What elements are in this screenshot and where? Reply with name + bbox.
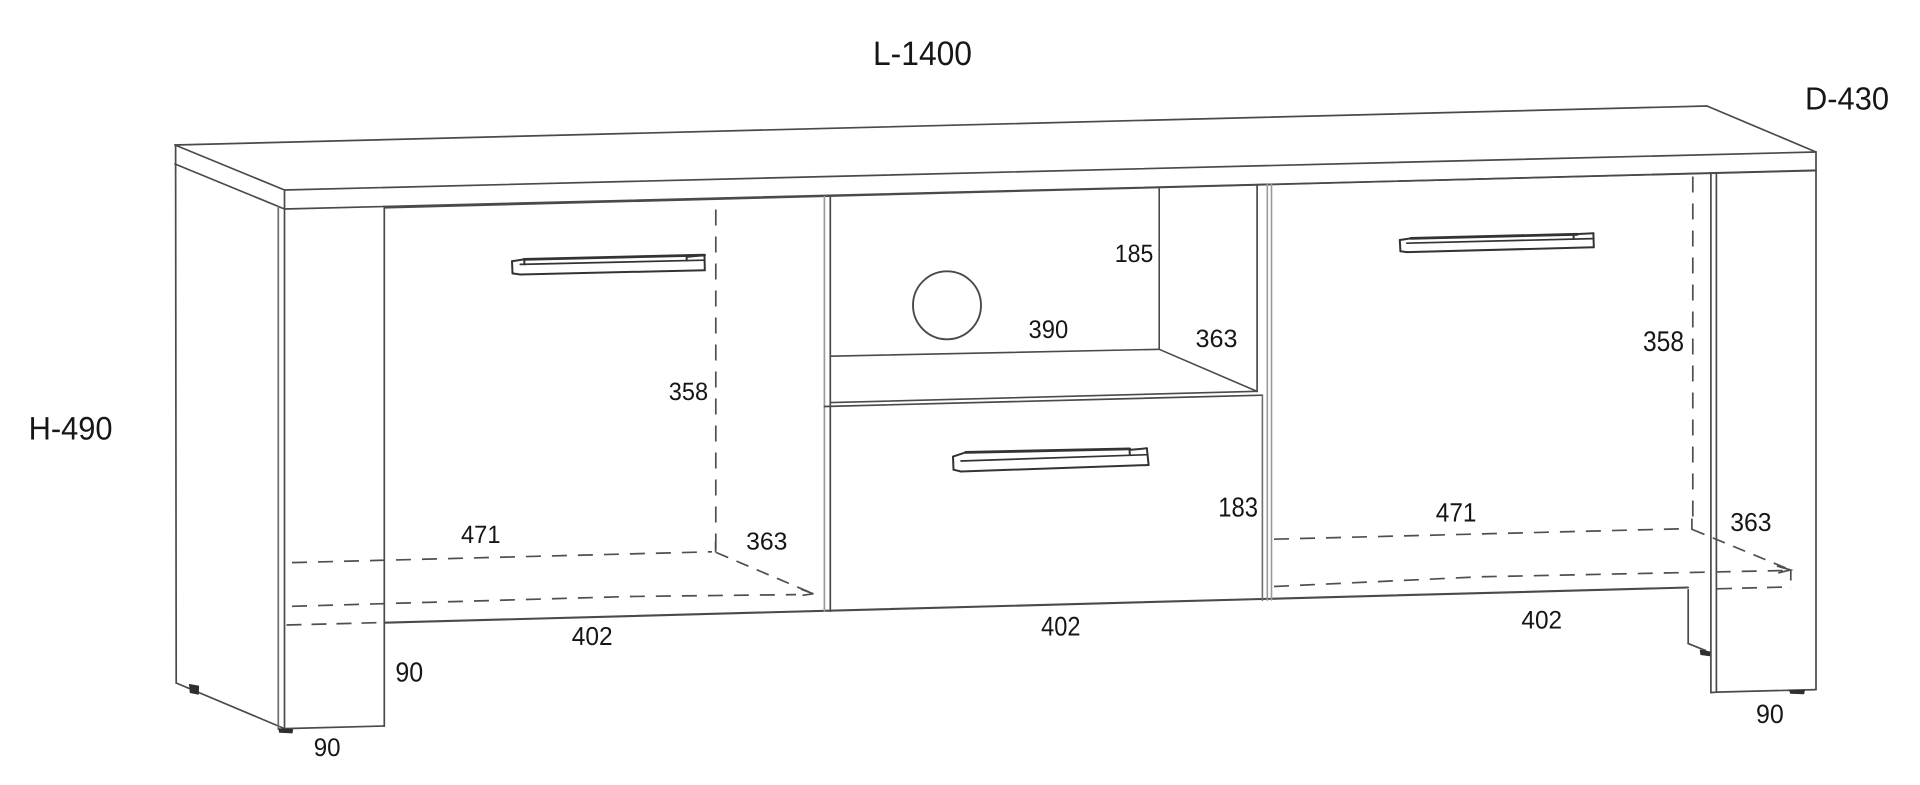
svg-text:363: 363 (1196, 325, 1238, 353)
svg-text:471: 471 (461, 521, 501, 549)
svg-text:363: 363 (1730, 507, 1771, 537)
svg-text:185: 185 (1115, 240, 1154, 268)
svg-text:90: 90 (1756, 699, 1784, 729)
svg-text:402: 402 (1521, 607, 1562, 635)
svg-text:471: 471 (1436, 498, 1477, 528)
svg-text:183: 183 (1218, 492, 1258, 523)
svg-text:H-490: H-490 (29, 411, 113, 447)
svg-text:402: 402 (1041, 612, 1080, 642)
svg-text:390: 390 (1029, 316, 1069, 344)
svg-text:358: 358 (1643, 326, 1684, 358)
svg-text:358: 358 (669, 378, 708, 406)
svg-text:402: 402 (572, 621, 613, 651)
svg-text:90: 90 (395, 657, 423, 688)
svg-text:L-1400: L-1400 (873, 35, 972, 73)
svg-text:D-430: D-430 (1805, 81, 1889, 117)
svg-text:363: 363 (746, 529, 787, 556)
svg-text:90: 90 (314, 734, 341, 762)
